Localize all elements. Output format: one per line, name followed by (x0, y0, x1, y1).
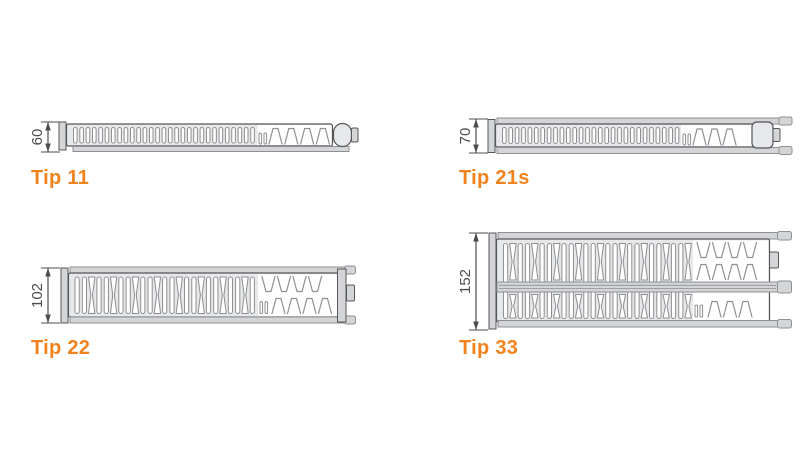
dimension-indicator: 152 (457, 233, 488, 330)
dimension-indicator: 60 (29, 122, 60, 152)
label-tip-11: Tip 11 (31, 167, 89, 190)
dimension-indicator: 102 (29, 268, 60, 323)
radiator-types-page: 6070102152 Tip 11 Tip 21s Tip 22 Tip 33 (0, 0, 800, 465)
dimension-value: 60 (29, 129, 46, 146)
dimension-indicator: 70 (457, 119, 488, 153)
dimension-value: 70 (457, 128, 474, 145)
radiator-drawing-tip22: 102 (29, 266, 356, 324)
dimension-value: 102 (29, 283, 46, 308)
radiator-drawing-tip11: 60 (29, 122, 358, 152)
radiator-drawing-tip33: 152 (457, 232, 792, 331)
radiator-drawing-tip21s: 70 (457, 117, 792, 155)
label-tip-22: Tip 22 (31, 337, 90, 360)
diagram-canvas: 6070102152 (0, 0, 800, 465)
label-tip-21s: Tip 21s (459, 167, 530, 190)
label-tip-33: Tip 33 (459, 337, 518, 360)
dimension-value: 152 (457, 269, 474, 294)
